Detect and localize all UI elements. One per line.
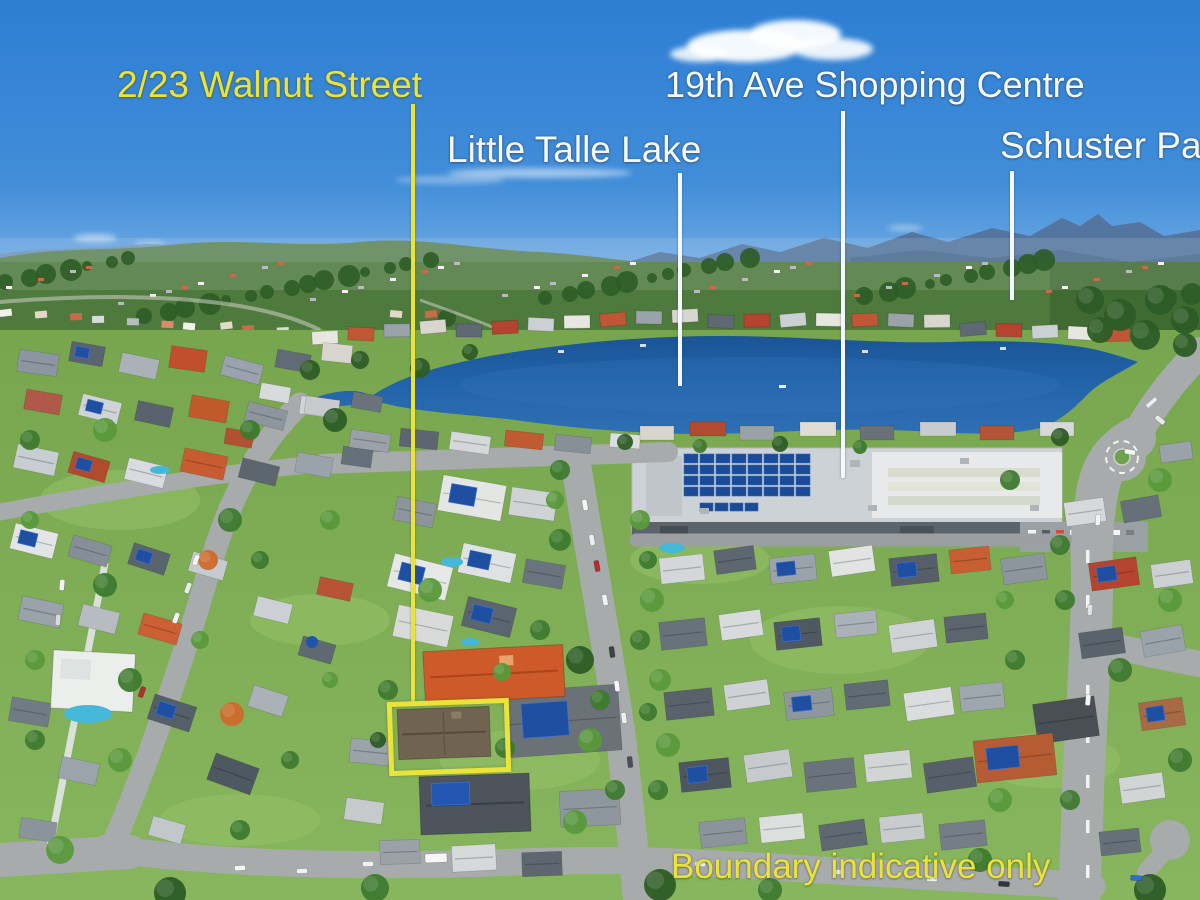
distant-house [1094, 278, 1100, 281]
tree-highlight [222, 704, 235, 717]
house [1138, 697, 1185, 731]
tree [772, 436, 788, 452]
tree [1051, 428, 1069, 446]
tree-highlight [27, 652, 38, 663]
waterfront-house [996, 324, 1022, 337]
tree-highlight [618, 435, 627, 444]
tree-highlight [1132, 322, 1149, 339]
waterfront-house [888, 313, 915, 327]
tree-highlight [352, 352, 362, 362]
solar-array [796, 476, 810, 485]
hill-tree [314, 270, 334, 290]
distant-house [582, 274, 588, 277]
distant-house [790, 266, 796, 269]
distant-house [438, 266, 444, 269]
tree-highlight [363, 876, 378, 891]
tree-highlight [322, 512, 333, 523]
tree-highlight [990, 790, 1003, 803]
house [380, 839, 421, 864]
tree [322, 672, 338, 688]
solar-array [700, 454, 714, 463]
tree-highlight [494, 664, 504, 674]
tree-highlight [854, 441, 862, 449]
house [889, 554, 940, 587]
hill-tree [616, 271, 638, 293]
tree [549, 529, 571, 551]
waterfront-house [780, 312, 807, 327]
tree-highlight [640, 552, 650, 562]
solar-array [780, 454, 794, 463]
solar-panels [791, 695, 812, 711]
tree-highlight [547, 492, 557, 502]
tree [639, 703, 657, 721]
tree [1148, 468, 1172, 492]
hill-tree [979, 264, 995, 280]
house [169, 346, 208, 373]
tree-highlight [156, 879, 174, 897]
waterfront-house [456, 324, 482, 337]
tree [1171, 306, 1199, 334]
waterfront-house [528, 317, 555, 331]
tree-highlight [22, 432, 33, 443]
solar-array [748, 465, 762, 474]
house-roof [554, 434, 591, 454]
house [949, 546, 991, 574]
house [959, 682, 1005, 712]
distant-house [854, 294, 860, 297]
tree-highlight [658, 735, 671, 748]
house [844, 680, 890, 710]
solar-panels [687, 766, 709, 784]
solar-panels [781, 625, 801, 641]
tree [230, 820, 250, 840]
distant-house [982, 262, 988, 265]
solar-array [732, 465, 746, 474]
tree [323, 408, 347, 432]
car [296, 868, 307, 873]
house [759, 813, 805, 843]
property-address-label: 2/23 Walnut Street [117, 66, 422, 103]
distant-house [92, 316, 104, 323]
solar-panels [449, 483, 477, 506]
tree [546, 491, 564, 509]
waterfront-house [924, 314, 950, 327]
tree-highlight [552, 462, 563, 473]
distant-house [390, 310, 403, 318]
solar-array [700, 487, 714, 496]
tree-highlight [997, 592, 1007, 602]
tree-highlight [27, 732, 38, 743]
distant-house [886, 286, 892, 289]
tree-highlight [1147, 287, 1164, 304]
solar-array [796, 487, 810, 496]
lake-sheen [460, 357, 1060, 413]
distant-house [230, 274, 236, 277]
car [1130, 875, 1141, 881]
property-boundary-box [387, 698, 512, 776]
roundabout [1098, 433, 1146, 481]
tree-highlight [632, 512, 643, 523]
hill-tree [106, 256, 118, 268]
lake-label: Little Talle Lake [447, 131, 701, 168]
house [640, 426, 674, 440]
tree-highlight [1057, 592, 1068, 603]
tree-highlight [1173, 308, 1188, 323]
car [1095, 514, 1101, 525]
solar-panels [1146, 705, 1165, 722]
solar-array [684, 465, 698, 474]
house [774, 618, 823, 651]
solar-panels [986, 745, 1020, 770]
tree-highlight [568, 648, 583, 663]
distant-house [966, 266, 972, 269]
solar-array [700, 476, 714, 485]
tree-highlight [651, 671, 663, 683]
tree [118, 668, 142, 692]
solar-array [796, 465, 810, 474]
house [1151, 559, 1194, 588]
tree [590, 690, 610, 710]
distant-house [550, 282, 556, 285]
distant-house [502, 294, 508, 297]
distant-house [166, 290, 172, 293]
car [425, 853, 447, 863]
tree-highlight [1170, 750, 1183, 763]
tree [617, 434, 633, 450]
tree-highlight [95, 420, 108, 433]
solar-array [764, 476, 778, 485]
house [769, 554, 817, 585]
house-roof [690, 422, 726, 436]
waterfront-house [384, 324, 410, 337]
tree [281, 751, 299, 769]
distant-house [161, 321, 173, 329]
tree [630, 510, 650, 530]
house-roof [800, 422, 836, 436]
solar-array [684, 454, 698, 463]
tree [693, 439, 707, 453]
car [362, 861, 373, 866]
tree-highlight [282, 752, 292, 762]
tree-highlight [1007, 652, 1018, 663]
house [743, 749, 792, 783]
hill-tree [925, 279, 935, 289]
house [321, 342, 353, 363]
tree-highlight [22, 512, 32, 522]
tree-highlight [371, 733, 380, 742]
waterfront-house [420, 319, 447, 334]
distant-house [183, 322, 196, 330]
car [55, 614, 61, 625]
house [679, 757, 732, 792]
tree-highlight [120, 670, 133, 683]
distant-house [35, 311, 48, 319]
hill-tree [894, 277, 916, 299]
lane-marking [1086, 865, 1090, 878]
tree [370, 732, 386, 748]
tree [21, 511, 39, 529]
tree-highlight [532, 622, 543, 633]
distant-house [614, 266, 620, 269]
distant-house [390, 278, 396, 281]
waterfront-house [564, 315, 590, 328]
house-roof [740, 426, 774, 440]
tree [220, 702, 244, 726]
hill-tree [1033, 249, 1055, 271]
distant-house [358, 286, 364, 289]
tree [1000, 470, 1020, 490]
distant-house [1158, 262, 1164, 265]
tree-highlight [565, 812, 578, 825]
solar-panels [521, 701, 569, 738]
tree [378, 680, 398, 700]
solar-panels [75, 346, 90, 359]
house [659, 554, 705, 584]
tree-highlight [252, 552, 262, 562]
distant-house [0, 309, 12, 317]
distant-house [86, 266, 92, 269]
hill-tree [121, 251, 135, 265]
solar-panels [1096, 565, 1117, 582]
solar-array [764, 454, 778, 463]
tree-highlight [640, 704, 650, 714]
cul-de-sac [1150, 820, 1190, 860]
tree [853, 440, 867, 454]
tree [418, 578, 442, 602]
tree [251, 551, 269, 569]
tree-highlight [1052, 537, 1063, 548]
solar-array [780, 476, 794, 485]
solar-array [748, 476, 762, 485]
car [1085, 694, 1091, 705]
tree-highlight [1062, 792, 1073, 803]
tree [462, 344, 478, 360]
tree [1168, 748, 1192, 772]
boat [779, 385, 786, 388]
tree-highlight [551, 531, 563, 543]
tree-highlight [1106, 301, 1124, 319]
tree [1050, 535, 1070, 555]
tree-highlight [1089, 319, 1103, 333]
house [690, 422, 726, 436]
tree-highlight [420, 580, 433, 593]
property-leader-line [411, 104, 415, 703]
parked-car [1126, 530, 1134, 535]
distant-house [630, 262, 636, 265]
distant-house [118, 302, 124, 305]
tree [988, 788, 1012, 812]
park-label: Schuster Park [1000, 127, 1200, 164]
house [784, 688, 835, 721]
house [1099, 828, 1141, 856]
distant-house [742, 278, 748, 281]
house [888, 619, 937, 653]
house [664, 688, 715, 721]
car [59, 579, 65, 590]
hill-tree [562, 286, 578, 302]
solar-array [732, 476, 746, 485]
waterfront-house [744, 314, 770, 327]
aerial-photo: Little Talle Lake 19th Ave Shopping Cent… [0, 0, 1200, 900]
tree [351, 351, 369, 369]
tree [25, 650, 45, 670]
house [554, 434, 591, 454]
distant-house [1142, 266, 1148, 269]
tree-highlight [592, 692, 603, 703]
house [399, 428, 439, 450]
tree-highlight [1052, 429, 1062, 439]
tree [1005, 650, 1025, 670]
tree-highlight [1110, 660, 1123, 673]
distant-house [534, 286, 540, 289]
waterfront-house [816, 313, 842, 326]
tree [1158, 588, 1182, 612]
hill-tree [647, 273, 657, 283]
tree [1145, 285, 1175, 315]
boundary-disclaimer-label: Boundary indicative only [671, 849, 1050, 884]
tree-highlight [200, 552, 211, 563]
tree [493, 663, 511, 681]
tree-highlight [773, 437, 782, 446]
house-roof [920, 422, 956, 436]
tree [240, 420, 260, 440]
tree [656, 733, 680, 757]
distant-house [934, 274, 940, 277]
distant-house [806, 262, 812, 265]
solar-array [748, 454, 762, 463]
solar-array [716, 454, 730, 463]
tree-highlight [380, 682, 391, 693]
tree [1076, 286, 1104, 314]
house [659, 618, 708, 651]
house-roof [169, 346, 208, 373]
distant-house [422, 270, 428, 273]
tree-highlight [650, 782, 661, 793]
distant-house [262, 266, 268, 269]
tree [1055, 590, 1075, 610]
tree [93, 418, 117, 442]
tree [25, 730, 45, 750]
house [920, 422, 956, 436]
distant-house [774, 270, 780, 273]
solar-array [764, 465, 778, 474]
solar-array [700, 465, 714, 474]
waterfront-house [960, 321, 987, 336]
distant-house [454, 262, 460, 265]
tree [639, 551, 657, 569]
tree [108, 748, 132, 772]
house-roof [321, 342, 353, 363]
house [718, 609, 763, 641]
waterfront-house [636, 311, 662, 324]
hill-tree [284, 280, 300, 296]
tree [191, 631, 209, 649]
solar-array [730, 503, 743, 511]
distant-house [182, 286, 188, 289]
house [451, 844, 496, 872]
tree [566, 646, 594, 674]
car [627, 756, 633, 767]
solar-array [732, 487, 746, 496]
tree [1130, 320, 1160, 350]
park-leader-line [1010, 171, 1014, 300]
tree [630, 630, 650, 650]
house [834, 610, 878, 638]
house [860, 426, 894, 440]
tree [1060, 790, 1080, 810]
solar-array [716, 476, 730, 485]
tree-highlight [694, 440, 702, 448]
solar-array [796, 454, 810, 463]
hill-tree [940, 274, 952, 286]
waterfront-house [672, 309, 699, 323]
distant-house [38, 278, 44, 281]
waterfront-house [708, 314, 735, 328]
tree-highlight [48, 838, 63, 853]
house-roof [399, 428, 439, 450]
tree-highlight [580, 730, 593, 743]
lane-marking [1086, 550, 1090, 563]
hill-tree [260, 285, 274, 299]
house [804, 757, 857, 792]
house [980, 426, 1014, 440]
solar-panels [896, 561, 917, 577]
house [939, 820, 987, 851]
tree [648, 780, 668, 800]
hill-tree [964, 269, 978, 283]
tree [320, 510, 340, 530]
tree-highlight [232, 822, 243, 833]
distant-house [902, 282, 908, 285]
distant-house [710, 286, 716, 289]
lane-marking [1086, 820, 1090, 833]
tree [578, 728, 602, 752]
tree-highlight [110, 750, 123, 763]
tree [300, 360, 320, 380]
tree [1087, 317, 1113, 343]
hill-tree [423, 252, 439, 268]
tree-highlight [1175, 335, 1188, 348]
car [234, 865, 245, 871]
tree-highlight [95, 575, 108, 588]
waterfront-house [852, 313, 879, 327]
distant-house [1126, 270, 1132, 273]
hill-tree [245, 290, 257, 302]
tree [649, 669, 671, 691]
tree [20, 430, 40, 450]
waterfront-house [492, 320, 519, 334]
tree [996, 591, 1014, 609]
hill-tree [716, 253, 734, 271]
hill-tree [662, 268, 674, 280]
house [944, 613, 988, 643]
hill-tree [701, 258, 717, 274]
charcoal-roof-house [419, 773, 531, 835]
house-roof [640, 426, 674, 440]
house [699, 818, 747, 849]
tree-highlight [1160, 590, 1173, 603]
house [864, 750, 913, 783]
house-roof [860, 426, 894, 440]
solar-array [732, 454, 746, 463]
tree-highlight [632, 632, 643, 643]
solar-array [748, 487, 762, 496]
house-roof [980, 426, 1014, 440]
solar-array [716, 465, 730, 474]
tree-highlight [607, 782, 618, 793]
tree [198, 550, 218, 570]
house [714, 545, 757, 574]
